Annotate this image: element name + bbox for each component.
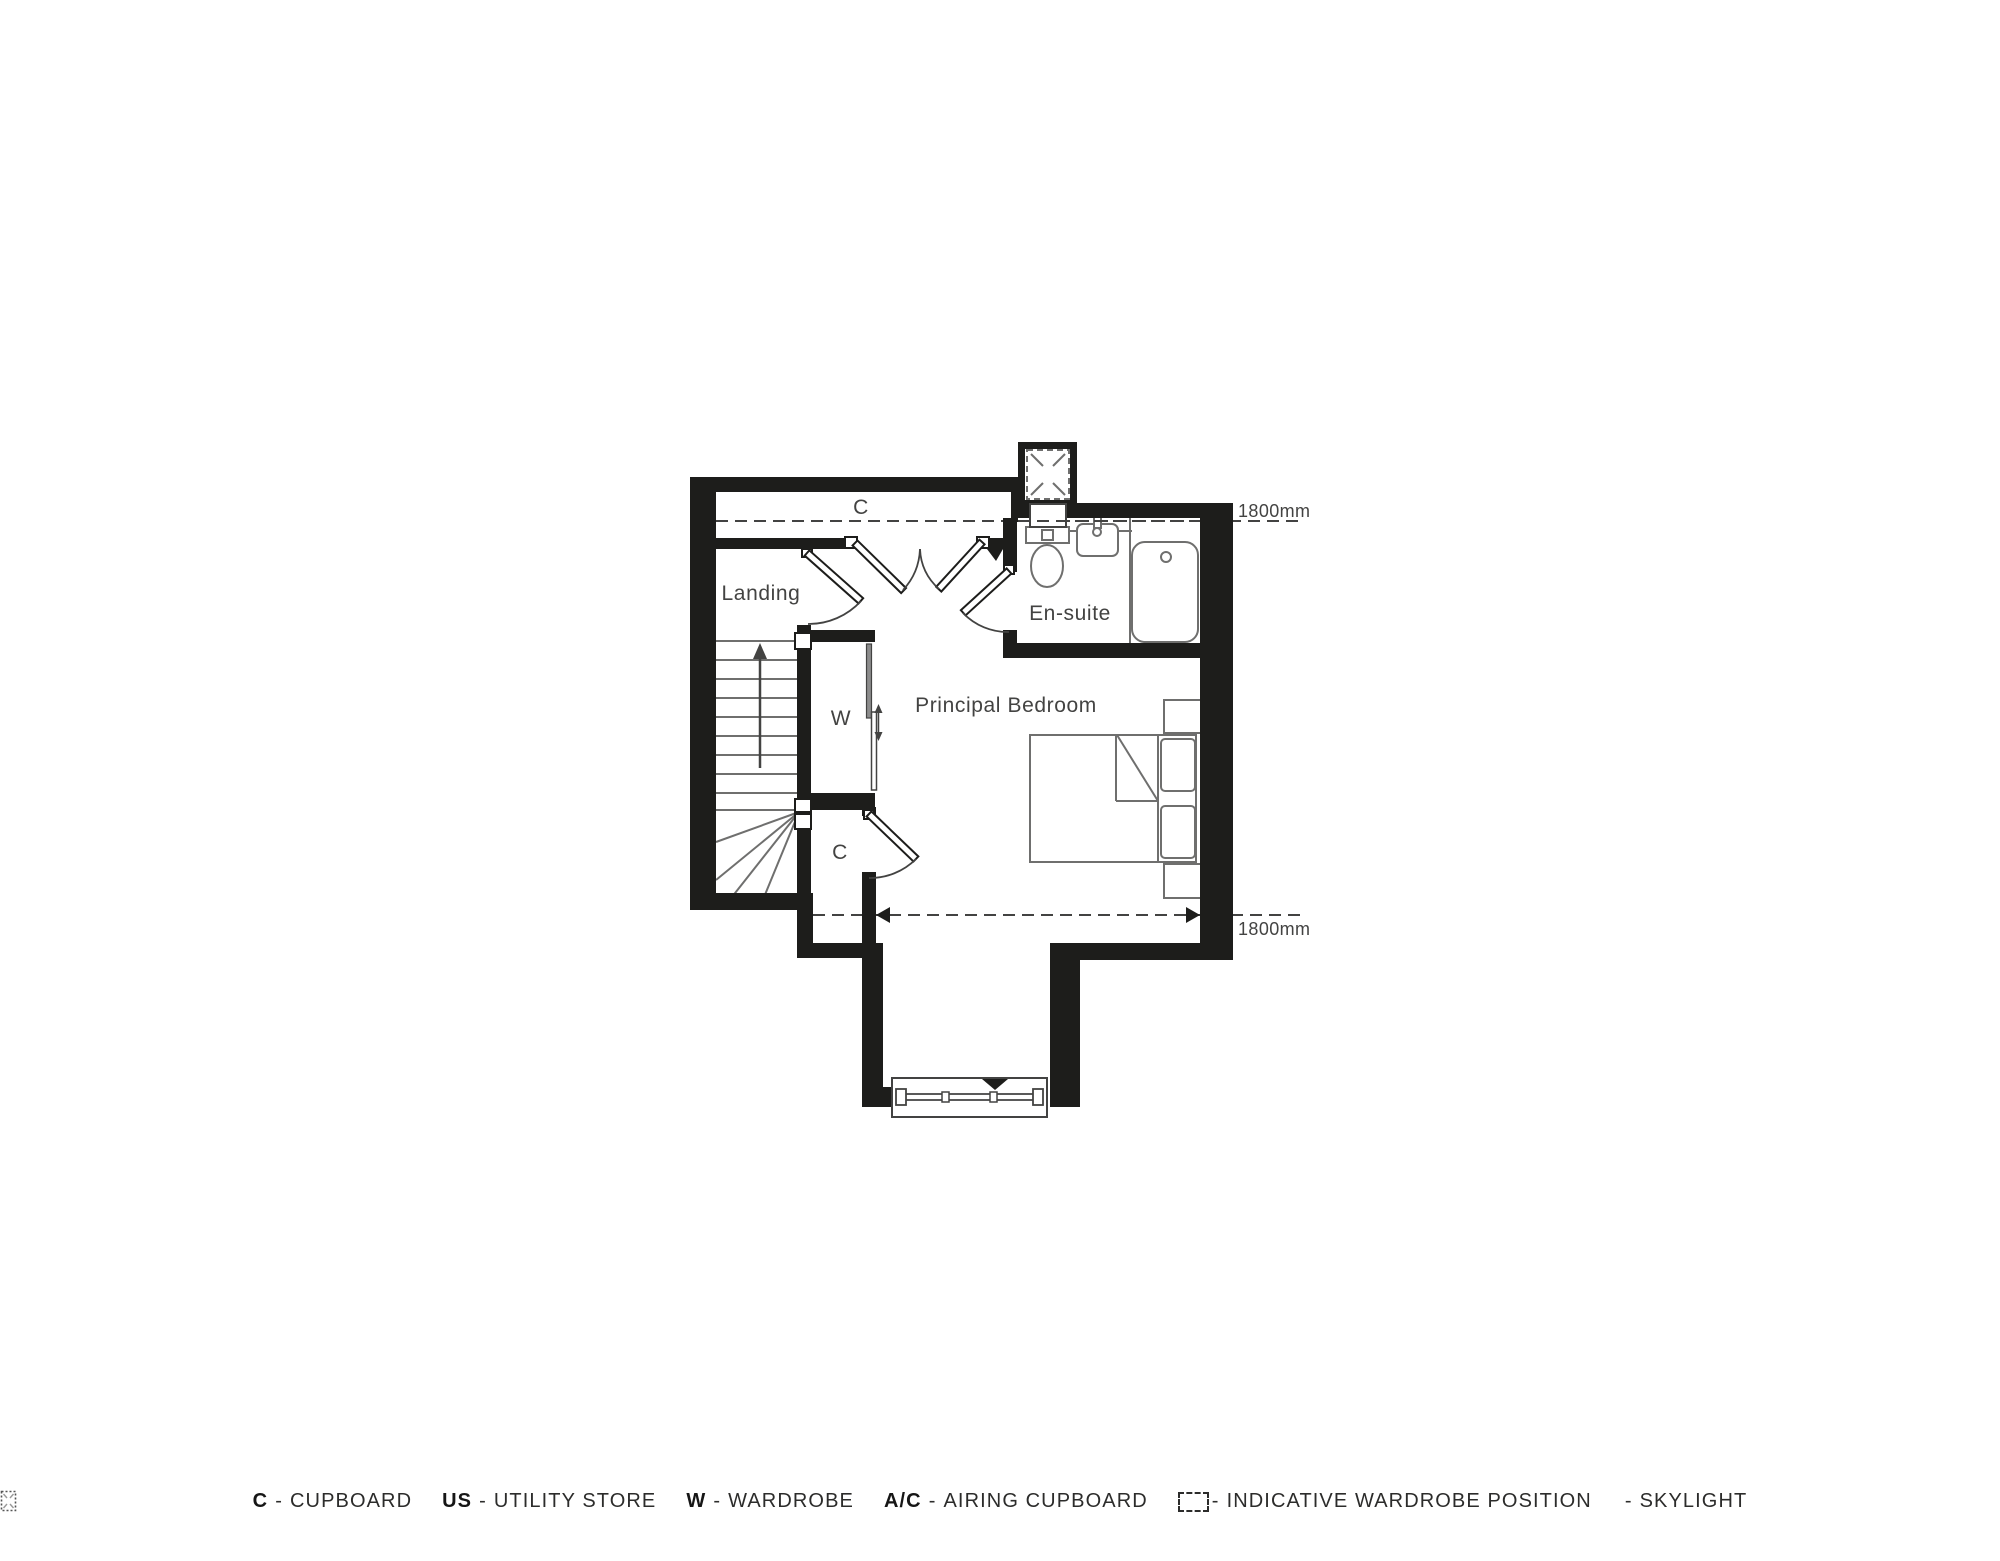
legend-dash: - xyxy=(1625,1490,1633,1513)
mattress xyxy=(1030,735,1196,862)
door-posts xyxy=(795,537,1014,829)
skylight-shaft xyxy=(1030,504,1066,527)
bedside-table xyxy=(1164,700,1201,733)
legend-dash: - xyxy=(479,1490,487,1513)
ensuite-label: En-suite xyxy=(1029,602,1111,625)
ensuite-door xyxy=(961,568,1012,632)
arrow-left-icon xyxy=(876,907,890,923)
legend-dash: - xyxy=(1212,1490,1220,1513)
bathtub-icon xyxy=(1132,542,1198,642)
legend-label: UTILITY STORE xyxy=(494,1490,656,1513)
legend-abbr: US xyxy=(442,1490,472,1513)
legend-dash: - xyxy=(275,1490,283,1513)
principal-bedroom-label: Principal Bedroom xyxy=(915,694,1097,717)
legend-abbr: A/C xyxy=(884,1490,922,1513)
legend-dash: - xyxy=(929,1490,937,1513)
legend-label: WARDROBE xyxy=(728,1490,854,1513)
headroom-dimension-bottom: 1800mm xyxy=(1238,919,1310,939)
legend-item-indicative-wardrobe-position: - INDICATIVE WARDROBE POSITION xyxy=(1178,1490,1592,1513)
legend-abbr: C xyxy=(253,1490,269,1513)
floor-plan-page: { "plan": { "rooms": { "landing": "Landi… xyxy=(0,0,2000,1561)
skylight xyxy=(1022,446,1074,528)
legend-label: SKYLIGHT xyxy=(1640,1490,1748,1513)
legend-item-wardrobe: W - WARDROBE xyxy=(686,1490,854,1513)
pillow xyxy=(1161,739,1195,791)
toilet-icon xyxy=(1026,527,1069,587)
cupboard-door xyxy=(867,811,919,878)
wardrobe-label: W xyxy=(831,707,851,730)
floor-plan-canvas: C Landing En-suite Principal Bedroom W C… xyxy=(0,0,2000,1561)
double-bed xyxy=(1030,700,1201,898)
stairs-up-arrow xyxy=(753,643,767,768)
legend: C - CUPBOARD US - UTILITY STORE W - WARD… xyxy=(0,1490,2000,1513)
landing-label: Landing xyxy=(722,582,801,605)
legend-item-cupboard: C - CUPBOARD xyxy=(253,1490,412,1513)
pillow xyxy=(1161,806,1195,858)
legend-item-skylight: - SKYLIGHT xyxy=(1622,1490,1747,1513)
legend-label: INDICATIVE WARDROBE POSITION xyxy=(1227,1490,1592,1513)
cupboard-top-label: C xyxy=(853,496,869,519)
legend-label: CUPBOARD xyxy=(290,1490,412,1513)
legend-abbr: W xyxy=(686,1490,706,1513)
cupboard-lower-label: C xyxy=(832,841,848,864)
legend-label: AIRING CUPBOARD xyxy=(943,1490,1147,1513)
eaves-cupboard-double-doors xyxy=(853,540,985,593)
indicative-wardrobe-position-icon xyxy=(1178,1492,1209,1512)
legend-item-airing-cupboard: A/C - AIRING CUPBOARD xyxy=(884,1490,1148,1513)
duvet-fold xyxy=(1117,735,1158,801)
headroom-dimension-top: 1800mm xyxy=(1238,501,1310,521)
bedside-table xyxy=(1164,864,1201,898)
door-flag-icon xyxy=(987,549,1003,561)
landing-door xyxy=(805,550,863,624)
wardrobe-sliding-door xyxy=(867,644,883,790)
legend-item-utility-store: US - UTILITY STORE xyxy=(442,1490,656,1513)
staircase xyxy=(716,641,799,902)
window xyxy=(892,1078,1047,1117)
legend-dash: - xyxy=(713,1490,721,1513)
arrow-right-icon xyxy=(1186,907,1200,923)
